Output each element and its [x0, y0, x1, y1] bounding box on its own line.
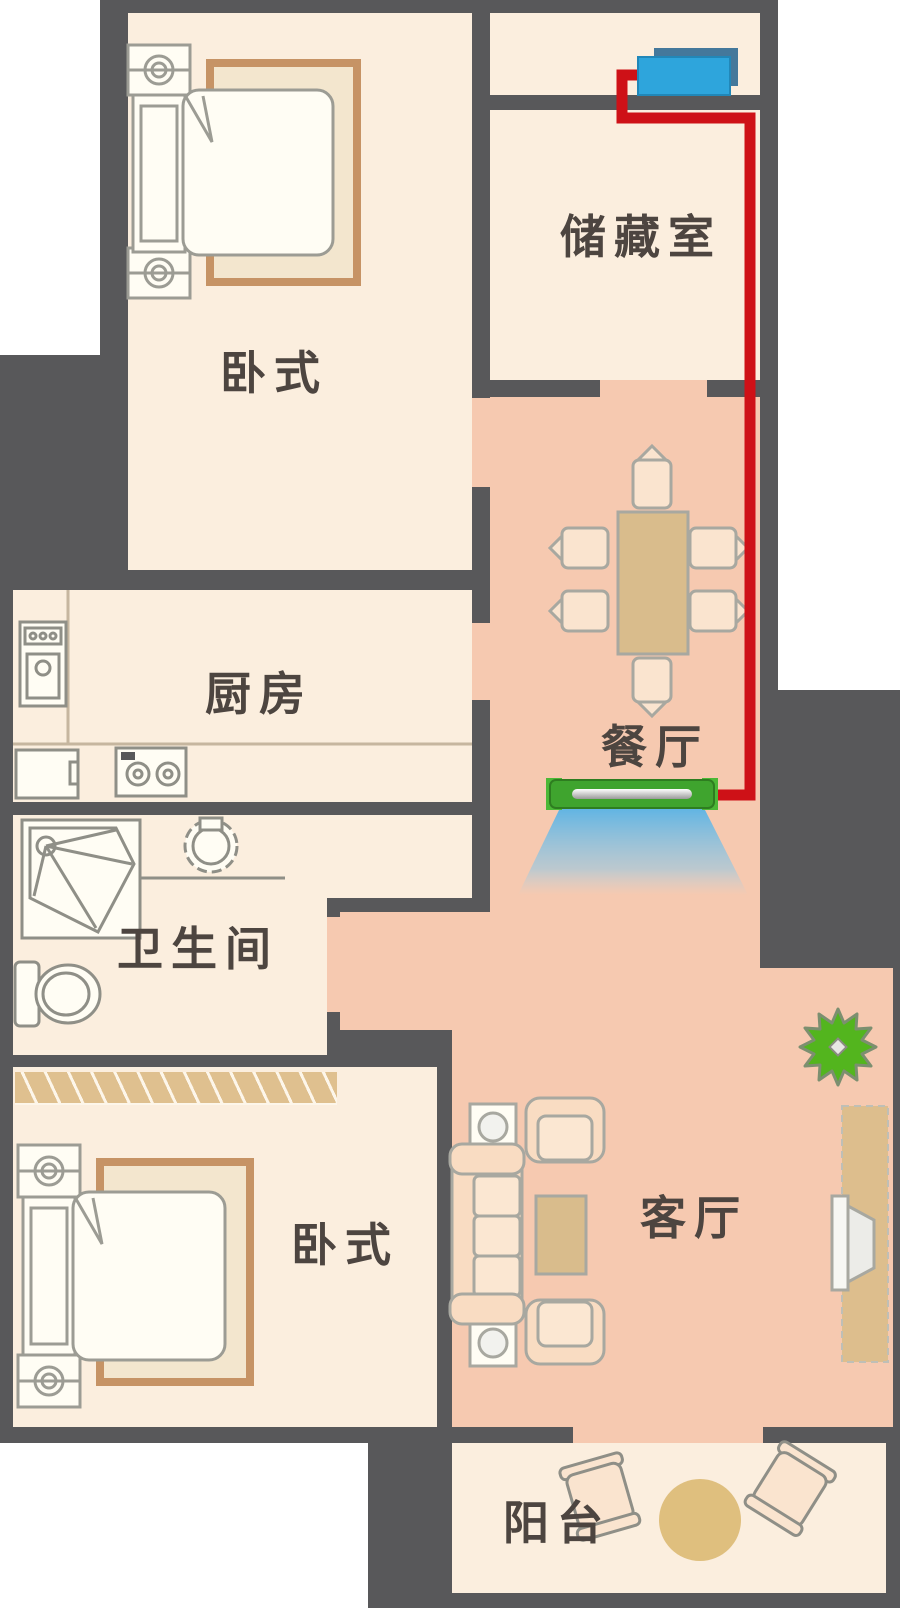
dining-chair [633, 446, 671, 508]
dining-chair [550, 528, 608, 568]
dining-chair [690, 528, 748, 568]
armchair [526, 1098, 604, 1162]
dining-table [618, 512, 688, 654]
sofa-armrest [450, 1294, 524, 1324]
label-dining-room: 餐厅 [593, 711, 709, 777]
bed-bottom-left [18, 1145, 250, 1407]
label-storage-room: 储藏室 [552, 201, 722, 267]
coffee-table [536, 1196, 586, 1274]
indoor-unit-vent [572, 789, 692, 799]
sofa-armrest [450, 1144, 524, 1174]
dining-set [550, 446, 748, 716]
label-living-room: 客厅 [632, 1182, 748, 1248]
label-balcony: 阳台 [495, 1487, 611, 1553]
label-bedroom-top-left: 卧式 [212, 337, 328, 403]
balcony-chair [743, 1440, 837, 1538]
balcony-table [659, 1479, 741, 1561]
dining-chair [550, 591, 608, 631]
dining-chair [633, 658, 671, 716]
armchair [526, 1300, 604, 1364]
airflow-icon [518, 808, 748, 895]
floor-plan: 卧式 储藏室 厨房 餐厅 卫生间 卧式 客厅 阳台 [0, 0, 900, 1608]
furniture-layer [0, 0, 900, 1608]
label-bathroom: 卫生间 [109, 913, 279, 979]
plant-icon [800, 1009, 876, 1085]
label-bedroom-bottom-left: 卧式 [283, 1209, 399, 1275]
label-kitchen: 厨房 [197, 658, 313, 724]
bed-top-left [128, 45, 357, 298]
dining-chair [690, 591, 748, 631]
outdoor-unit-icon [638, 57, 730, 95]
